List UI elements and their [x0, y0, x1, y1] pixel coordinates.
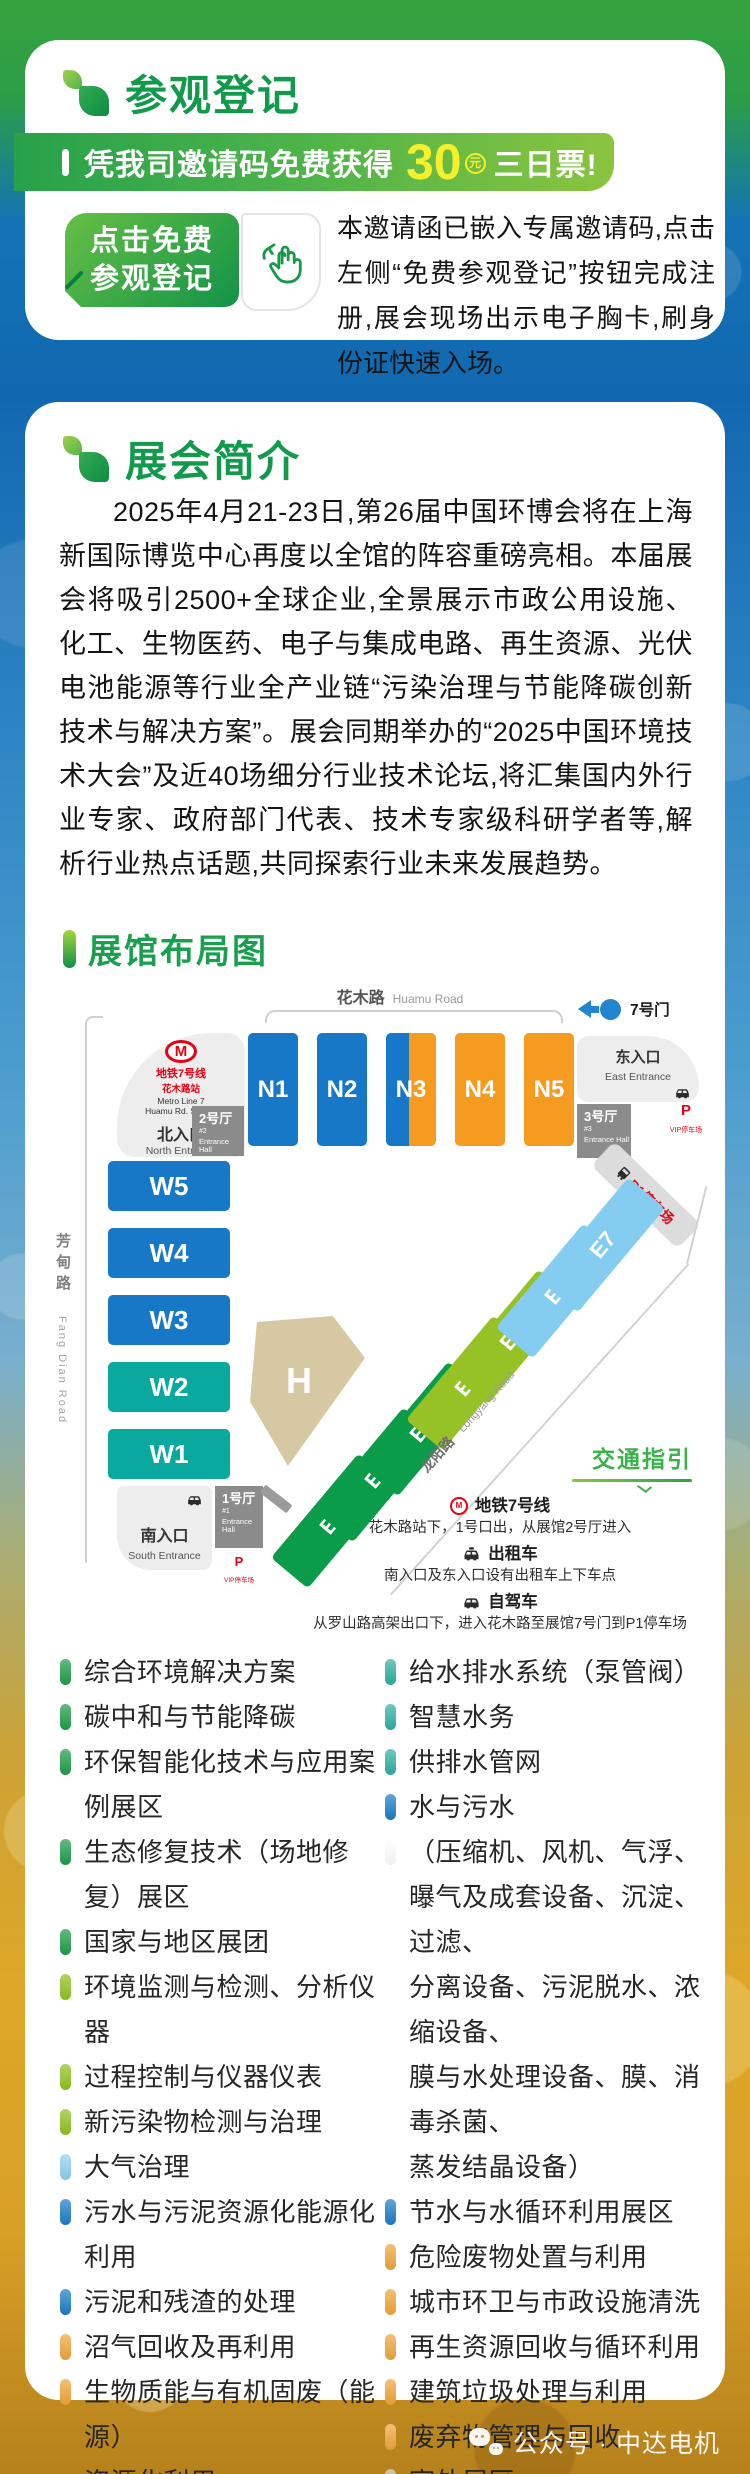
gate7-dot-icon: [600, 999, 621, 1020]
metro-line-en: Metro Line 7: [157, 1096, 204, 1106]
category-marker: [60, 1704, 71, 1730]
hall-e7: E7: [541, 1177, 665, 1312]
category-marker: [60, 2064, 71, 2090]
list-item: 生态修复技术（场地修复）展区: [60, 1830, 385, 1920]
category-marker: [385, 1704, 396, 1730]
south-entrance-area: 南入口 South Entrance: [117, 1486, 212, 1570]
cta-line2: 参观登记: [90, 260, 214, 298]
metro-line-zh: 地铁7号线: [156, 1065, 206, 1081]
category-marker: [60, 1659, 71, 1685]
list-item: 城市环卫与市政设施清洗: [385, 2280, 710, 2325]
watermark-text: 公众号 · 中达电机: [513, 2424, 720, 2460]
category-marker: [60, 2109, 71, 2135]
category-marker: [385, 2199, 396, 2225]
list-item: 大气治理: [60, 2145, 385, 2190]
list-item: 建筑垃圾处理与利用: [385, 2370, 710, 2415]
venue-map: 花木路Huamu Road 7号门 芳甸路 Fang Dian Road M 地…: [40, 988, 710, 1610]
fangdian-road-line: [85, 1016, 103, 1563]
list-item: 环保智能化技术与应用案例展区: [60, 1740, 385, 1830]
metro-logo-icon: M: [165, 1040, 197, 1063]
hall-n4: N4: [455, 1033, 505, 1146]
category-marker: [60, 2289, 71, 2315]
gate7: 7号门: [578, 998, 670, 1020]
list-item: （压缩机、风机、气浮、 曝气及成套设备、沉淀、过滤、 分离设备、污泥脱水、浓缩设…: [385, 1830, 710, 2190]
hall-w5: W5: [108, 1161, 230, 1211]
traffic-guide: 交通指引 M 地铁7号线 花木路站下，1号口出，从展馆2号厅进入 出租车 南入: [290, 1440, 710, 1635]
registration-card: 参观登记 凭我司邀请码免费获得 30 元 三日票! 点击免费 参观登记: [25, 40, 725, 340]
free-register-button[interactable]: 点击免费 参观登记: [65, 213, 239, 307]
map-header: 展馆布局图: [63, 924, 268, 973]
banner-prefix: 凭我司邀请码免费获得: [84, 140, 394, 184]
list-item: 环境监测与检测、分析仪器: [60, 1965, 385, 2055]
vip-parking-east: P VIP停车场: [666, 1102, 706, 1137]
south-entrance-zh: 南入口: [117, 1522, 212, 1546]
list-item: 综合环境解决方案: [60, 1650, 385, 1695]
guide-item-car: 自驾车: [290, 1590, 710, 1614]
category-marker: [385, 2379, 396, 2405]
guide-item-metro: M 地铁7号线: [290, 1494, 710, 1518]
list-item: 国家与地区展团: [60, 1920, 385, 1965]
leaf-icon: [63, 436, 109, 482]
list-item: 给水排水系统（泵管阀）: [385, 1650, 710, 1695]
hall-n2: N2: [317, 1033, 367, 1146]
category-column-right: 给水排水系统（泵管阀） 智慧水务 供排水管网 水与污水 （压缩机、风机、气浮、 …: [385, 1650, 710, 2474]
category-marker: [385, 1839, 396, 1865]
gate7-label: 7号门: [630, 998, 670, 1020]
category-marker: [385, 2289, 396, 2315]
registration-header: 参观登记: [63, 62, 301, 123]
metro-icon: M: [450, 1497, 468, 1515]
east-entrance-area: 东入口 East Entrance: [577, 1036, 699, 1102]
category-marker: [60, 2379, 71, 2405]
list-item: 室外展区: [385, 2460, 710, 2474]
wechat-icon: [469, 2428, 503, 2456]
entrance-hall-2: 2号厅 #2 Entrance Hall: [192, 1106, 244, 1156]
list-item: 智慧水务: [385, 1695, 710, 1740]
watermark: 公众号 · 中达电机: [0, 2424, 750, 2460]
category-marker: [385, 1794, 396, 1820]
gate7-arrow-icon: [578, 1000, 591, 1018]
category-marker: [60, 1749, 71, 1775]
category-marker: [60, 2199, 71, 2225]
entrance-hall-1: 1号厅 #1 Entrance Hall: [215, 1486, 263, 1548]
banner-tick-icon: [62, 149, 69, 176]
category-marker: [60, 1839, 71, 1865]
category-marker: [385, 1749, 396, 1775]
huamu-road-line: [265, 1010, 563, 1023]
category-marker: [385, 2334, 396, 2360]
guide-desc-metro: 花木路站下，1号口出，从展馆2号厅进入: [290, 1518, 710, 1539]
hall-n5: N5: [524, 1033, 574, 1146]
hall-w1: W1: [108, 1429, 230, 1479]
banner-amount: 30: [406, 137, 462, 187]
bar-icon: [63, 930, 76, 968]
list-item: 过程控制与仪器仪表: [60, 2055, 385, 2100]
connector-hall1: [260, 1485, 293, 1514]
list-item: 污水与污泥资源化能源化利用: [60, 2190, 385, 2280]
intro-header: 展会简介: [63, 428, 301, 489]
hall-n1: N1: [248, 1033, 298, 1146]
list-item: 危险废物处置与利用: [385, 2235, 710, 2280]
click-hand-icon[interactable]: [241, 213, 321, 311]
registration-title: 参观登记: [125, 62, 301, 123]
intro-paragraph: 2025年4月21-23日,第26届中国环博会将在上海新国际博览中心再度以全馆的…: [59, 490, 693, 886]
vip-parking-south: P VIP停车场: [216, 1554, 262, 1587]
list-item: 沼气回收及再利用: [60, 2325, 385, 2370]
hall-w4: W4: [108, 1228, 230, 1278]
east-entrance-en: East Entrance: [605, 1071, 671, 1083]
list-item: 碳中和与节能降碳: [60, 1695, 385, 1740]
list-item: 再生资源回收与循环利用: [385, 2325, 710, 2370]
guide-desc-taxi: 南入口及东入口设有出租车上下车点: [290, 1566, 710, 1587]
category-column-left: 综合环境解决方案 碳中和与节能降碳 环保智能化技术与应用案例展区 生态修复技术（…: [60, 1650, 385, 2474]
guide-desc-car: 从罗山路高架出口下，进入花木路至展馆7号门到P1停车场: [290, 1614, 710, 1635]
registration-description: 本邀请函已嵌入专属邀请码,点击左侧“免费参观登记”按钮完成注册,展会现场出示电子…: [337, 206, 715, 386]
category-marker: [60, 2154, 71, 2180]
category-marker: [385, 2244, 396, 2270]
guide-tick-icon: [637, 1481, 652, 1493]
list-item: 水与污水: [385, 1785, 710, 1830]
leaf-icon: [63, 70, 109, 116]
hall-w2: W2: [108, 1362, 230, 1412]
category-marker: [385, 1659, 396, 1685]
list-item: 新污染物检测与治理: [60, 2100, 385, 2145]
guide-item-taxi: 出租车: [290, 1542, 710, 1566]
category-marker: [60, 1974, 71, 2000]
list-item: 节水与水循环利用展区: [385, 2190, 710, 2235]
huamu-road-label: 花木路Huamu Road: [270, 984, 530, 1008]
east-entrance-zh: 东入口: [577, 1046, 699, 1067]
car-icon: [186, 1494, 203, 1506]
free-ticket-banner: 凭我司邀请码免费获得 30 元 三日票!: [14, 133, 614, 191]
page-fold-edge: [64, 270, 84, 290]
list-item: 污泥和残渣的处理: [60, 2280, 385, 2325]
car-icon: [674, 1087, 691, 1099]
poster-page: 参观登记 凭我司邀请码免费获得 30 元 三日票! 点击免费 参观登记: [0, 0, 750, 2474]
hall-n3: N3: [386, 1033, 436, 1146]
hand-click-icon: [255, 231, 307, 293]
banner-unit: 元: [465, 153, 486, 174]
hall-w3: W3: [108, 1295, 230, 1345]
category-marker: [385, 2469, 396, 2474]
guide-title: 交通指引: [290, 1440, 710, 1474]
expo-card: 展会简介 2025年4月21-23日,第26届中国环博会将在上海新国际博览中心再…: [25, 402, 725, 2400]
metro-station-zh: 花木路站: [162, 1081, 200, 1095]
gate7-arrow-tail: [591, 1006, 599, 1013]
banner-suffix: 三日票!: [494, 140, 598, 184]
map-title: 展馆布局图: [88, 924, 268, 973]
cta-line1: 点击免费: [90, 222, 214, 260]
page-fold-decoration: [64, 290, 82, 308]
car-icon: [462, 1596, 481, 1609]
south-entrance-en: South Entrance: [128, 1550, 200, 1562]
category-marker: [60, 2334, 71, 2360]
category-marker: [60, 1929, 71, 1955]
list-item: 供排水管网: [385, 1740, 710, 1785]
guide-underline: [572, 1479, 692, 1482]
intro-title: 展会简介: [125, 428, 301, 489]
fangdian-road-label: 芳甸路 Fang Dian Road: [52, 1233, 73, 1533]
taxi-icon: [462, 1547, 481, 1561]
